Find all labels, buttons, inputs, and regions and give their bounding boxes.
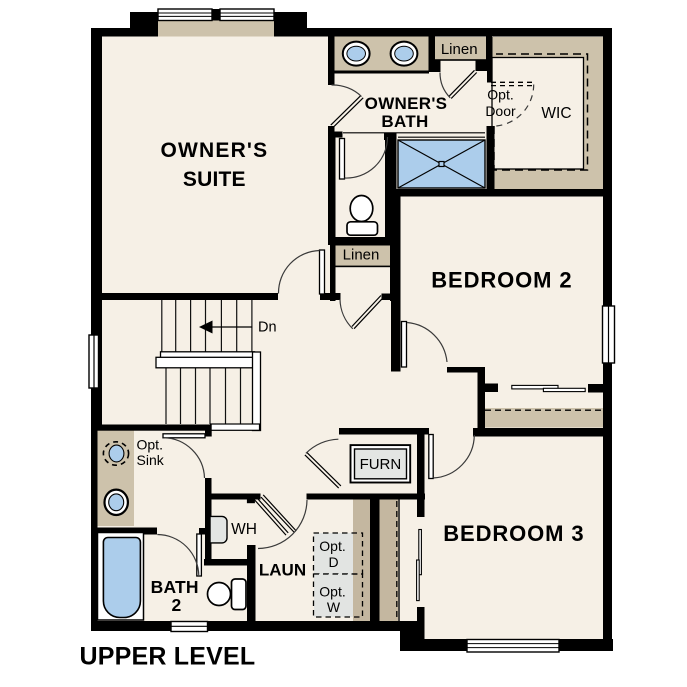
svg-text:Dn: Dn (258, 320, 277, 336)
svg-text:WH: WH (231, 521, 257, 538)
svg-text:OWNER'S: OWNER'S (365, 94, 448, 113)
svg-text:D: D (328, 554, 338, 570)
svg-text:Sink: Sink (137, 452, 165, 468)
svg-text:BEDROOM 2: BEDROOM 2 (431, 268, 572, 293)
svg-text:WIC: WIC (541, 105, 571, 122)
svg-text:BATH: BATH (151, 577, 199, 597)
svg-text:Opt.: Opt. (137, 436, 163, 452)
svg-text:Linen: Linen (343, 247, 380, 264)
svg-text:FURN: FURN (360, 456, 402, 473)
svg-text:SUITE: SUITE (183, 168, 246, 191)
svg-text:LAUN: LAUN (259, 561, 306, 580)
svg-text:OWNER'S: OWNER'S (160, 139, 268, 162)
svg-text:2: 2 (172, 595, 182, 615)
svg-text:Door: Door (485, 103, 516, 119)
svg-text:Opt.: Opt. (487, 87, 513, 103)
svg-text:BATH: BATH (381, 112, 428, 131)
svg-text:W: W (327, 599, 341, 615)
svg-text:Opt.: Opt. (319, 584, 345, 600)
svg-text:UPPER LEVEL: UPPER LEVEL (80, 643, 256, 671)
svg-text:Opt.: Opt. (319, 538, 345, 554)
svg-text:Linen: Linen (441, 41, 478, 58)
svg-text:BEDROOM 3: BEDROOM 3 (443, 521, 584, 546)
